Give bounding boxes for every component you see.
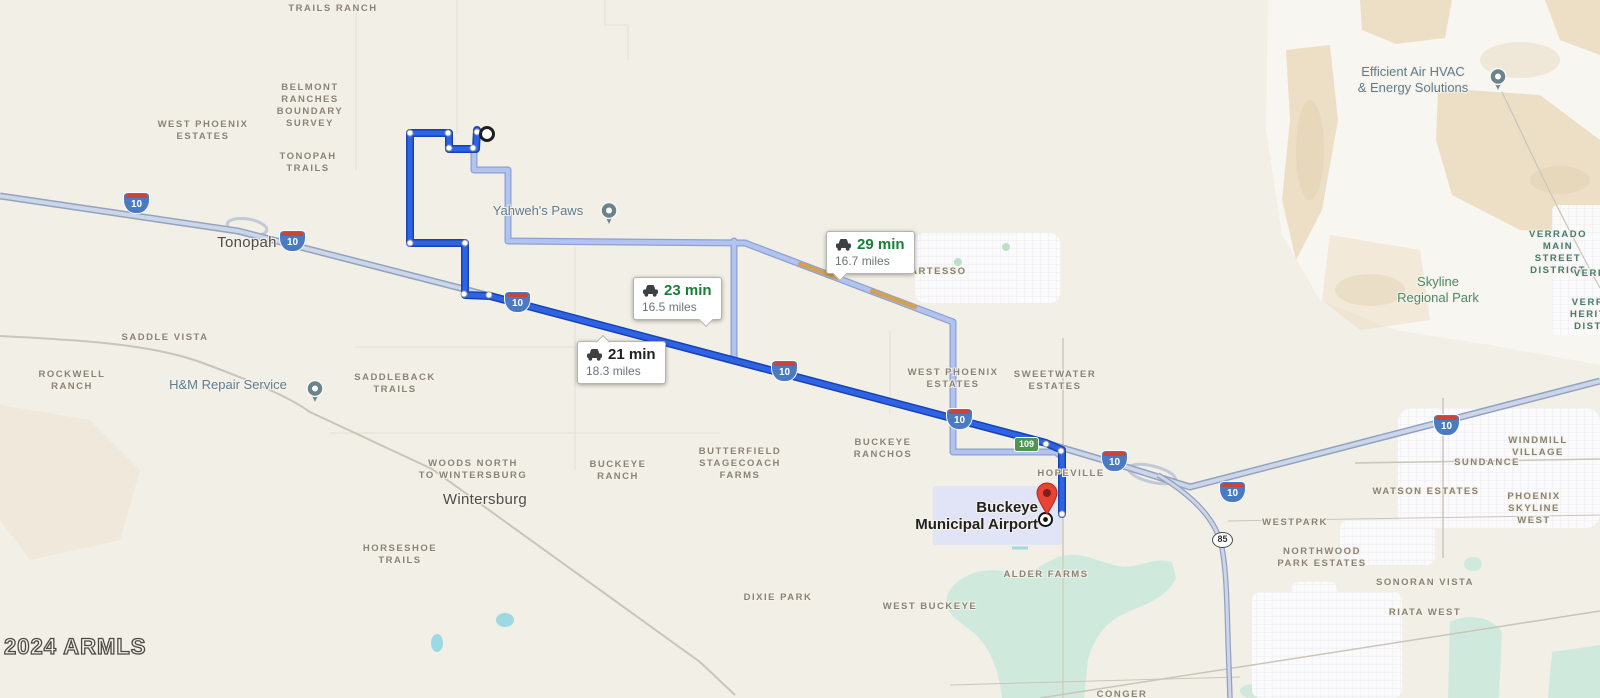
area-label: BUCKEYE RANCHOS	[854, 437, 913, 461]
area-label: WINDMILL VILLAGE	[1508, 435, 1568, 459]
route-duration: 23 min	[664, 282, 712, 299]
map-canvas[interactable]: TRAILS RANCH BELMONT RANCHES BOUNDARY SU…	[0, 0, 1600, 698]
area-label: RIATA WEST	[1389, 607, 1461, 619]
poi-pin-efficient-air[interactable]	[1489, 67, 1507, 91]
area-label: WEST PHOENIX ESTATES	[158, 119, 249, 143]
area-label: TONOPAH TRAILS	[279, 151, 336, 175]
route-start-marker[interactable]	[479, 126, 495, 142]
car-icon	[586, 348, 603, 361]
route-distance: 16.5 miles	[642, 300, 712, 314]
car-icon	[642, 284, 659, 297]
poi-label-hm-repair[interactable]: H&M Repair Service	[169, 377, 287, 393]
watermark: 2024 ARMLS	[4, 634, 146, 660]
car-icon	[835, 238, 852, 251]
water-bodies	[431, 613, 514, 652]
area-label: PHOENIX SKYLINE WEST	[1501, 491, 1567, 527]
area-label: WOODS NORTH TO WINTERSBURG	[419, 458, 527, 482]
area-label: ALDER FARMS	[1003, 569, 1088, 581]
town-label-wintersburg: Wintersburg	[443, 491, 527, 508]
route-bubble-alt-29[interactable]: 29 min 16.7 miles	[826, 231, 915, 274]
area-label: SWEETWATER ESTATES	[1014, 369, 1096, 393]
area-label: CONGER	[1097, 689, 1148, 698]
area-label: SONORAN VISTA	[1376, 577, 1474, 589]
area-label: VERR	[1574, 268, 1600, 280]
poi-pin-yahwehs-paws[interactable]	[600, 201, 618, 225]
route-bubble-selected[interactable]: 21 min 18.3 miles	[577, 341, 666, 384]
area-label: BELMONT RANCHES BOUNDARY SURVEY	[277, 82, 344, 130]
route-distance: 16.7 miles	[835, 254, 905, 268]
area-label: BUCKEYE RANCH	[590, 459, 647, 483]
area-label: NORTHWOOD PARK ESTATES	[1277, 546, 1366, 570]
alternate-routes[interactable]	[474, 150, 1062, 457]
area-label: HOPEVILLE	[1037, 468, 1104, 480]
route-duration: 21 min	[608, 346, 656, 363]
poi-pin-hm-repair[interactable]	[306, 379, 324, 403]
area-label: DIXIE PARK	[744, 592, 813, 604]
route-duration: 29 min	[857, 236, 905, 253]
traffic-segment	[872, 291, 915, 307]
area-label: HORSESHOE TRAILS	[363, 543, 437, 567]
area-label: BUTTERFIELD STAGECOACH FARMS	[699, 446, 781, 482]
route-bubble-alt-23[interactable]: 23 min 16.5 miles	[633, 277, 722, 320]
poi-label-efficient-air[interactable]: Efficient Air HVAC & Energy Solutions	[1358, 64, 1469, 95]
town-label-tonopah: Tonopah	[217, 234, 277, 251]
park-label: Skyline Regional Park	[1397, 274, 1479, 305]
area-label: SADDLE VISTA	[122, 332, 209, 344]
area-label: SUNDANCE	[1454, 457, 1520, 469]
area-label: ROCKWELL RANCH	[39, 369, 106, 393]
route-distance: 18.3 miles	[586, 364, 656, 378]
area-label: SADDLEBACK TRAILS	[354, 372, 436, 396]
destination-label: Buckeye Municipal Airport	[908, 499, 1038, 534]
area-label: WATSON ESTATES	[1372, 486, 1479, 498]
area-label: WESTPARK	[1262, 517, 1328, 529]
route-109-shield: 109	[1014, 437, 1039, 452]
area-label: WEST PHOENIX ESTATES	[908, 367, 999, 391]
route-85-shield: 85	[1212, 532, 1233, 548]
area-label: WEST BUCKEYE	[883, 601, 978, 613]
destination-pin[interactable]	[1034, 481, 1060, 515]
area-label: VERR HERIT DIST	[1570, 297, 1600, 333]
area-label: TRAILS RANCH	[288, 3, 377, 15]
poi-label-yahwehs-paws[interactable]: Yahweh's Paws	[493, 203, 583, 219]
